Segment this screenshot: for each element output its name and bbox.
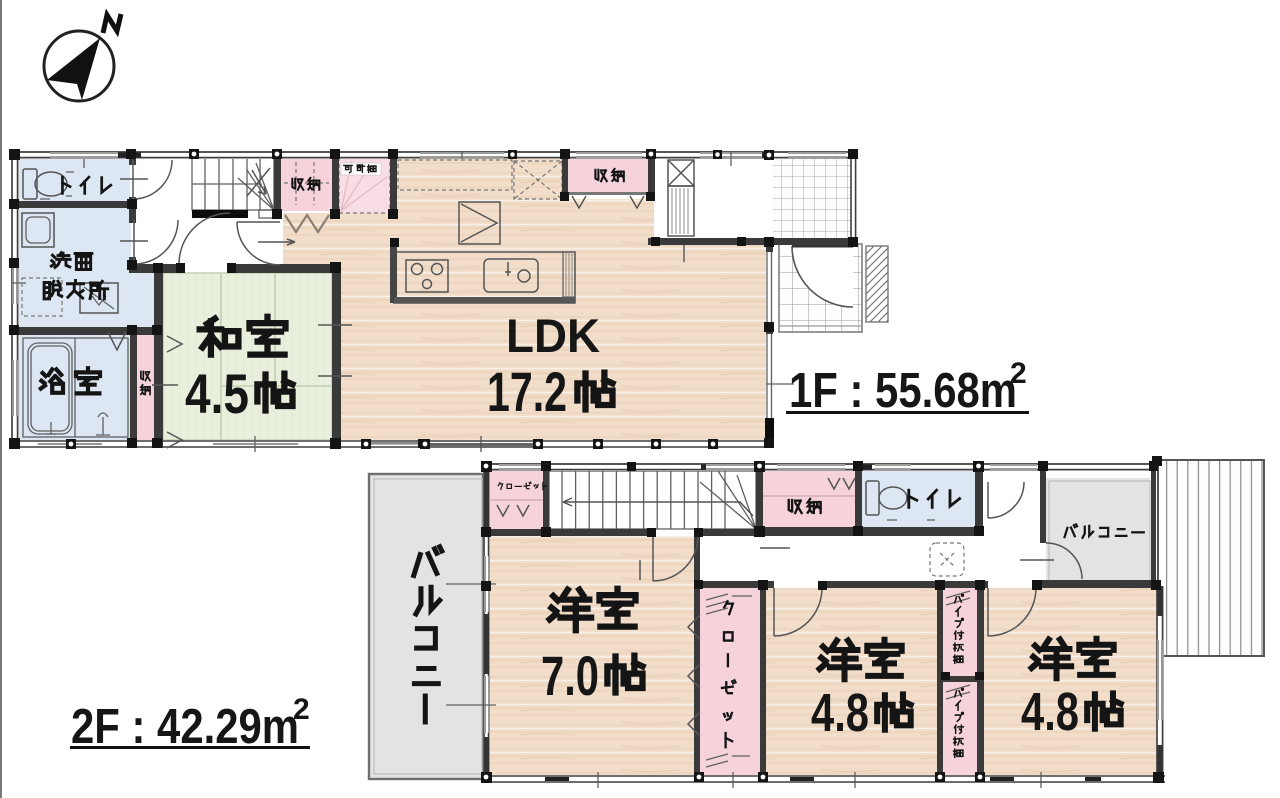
svg-text:2: 2	[1010, 357, 1027, 390]
svg-text:17.2: 17.2	[487, 360, 567, 423]
svg-text:2: 2	[293, 693, 310, 726]
svg-text:4.8: 4.8	[811, 683, 869, 743]
svg-text:2F : 42.29m: 2F : 42.29m	[71, 700, 299, 754]
svg-text:LDK: LDK	[506, 309, 600, 362]
svg-text:7.0: 7.0	[541, 644, 599, 707]
svg-text:1F : 55.68m: 1F : 55.68m	[789, 364, 1017, 418]
svg-text:4.5: 4.5	[185, 362, 249, 425]
svg-text:4.8: 4.8	[1021, 682, 1079, 742]
